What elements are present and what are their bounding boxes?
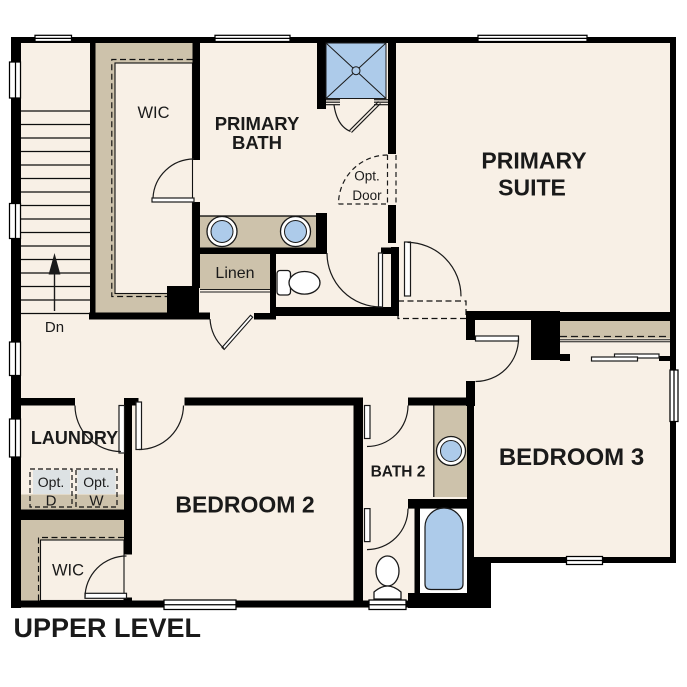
svg-text:UPPER LEVEL: UPPER LEVEL	[14, 613, 202, 643]
svg-text:Dn: Dn	[45, 319, 64, 336]
svg-text:W: W	[89, 493, 104, 510]
svg-text:Opt.: Opt.	[83, 474, 109, 490]
svg-text:BATH 2: BATH 2	[371, 464, 426, 481]
svg-text:Opt.: Opt.	[354, 169, 380, 184]
svg-text:Linen: Linen	[215, 265, 254, 282]
svg-text:WIC: WIC	[137, 104, 169, 122]
svg-text:PRIMARY: PRIMARY	[215, 113, 300, 134]
svg-text:LAUNDRY: LAUNDRY	[31, 428, 118, 448]
svg-text:BATH: BATH	[232, 132, 282, 153]
svg-text:BEDROOM 3: BEDROOM 3	[499, 444, 644, 471]
svg-text:PRIMARY: PRIMARY	[481, 148, 586, 174]
svg-text:Opt.: Opt.	[38, 474, 64, 490]
svg-text:D: D	[46, 493, 57, 510]
svg-text:WIC: WIC	[52, 562, 84, 580]
svg-text:SUITE: SUITE	[498, 175, 566, 201]
svg-text:Door: Door	[352, 188, 382, 203]
svg-text:BEDROOM 2: BEDROOM 2	[175, 492, 314, 518]
